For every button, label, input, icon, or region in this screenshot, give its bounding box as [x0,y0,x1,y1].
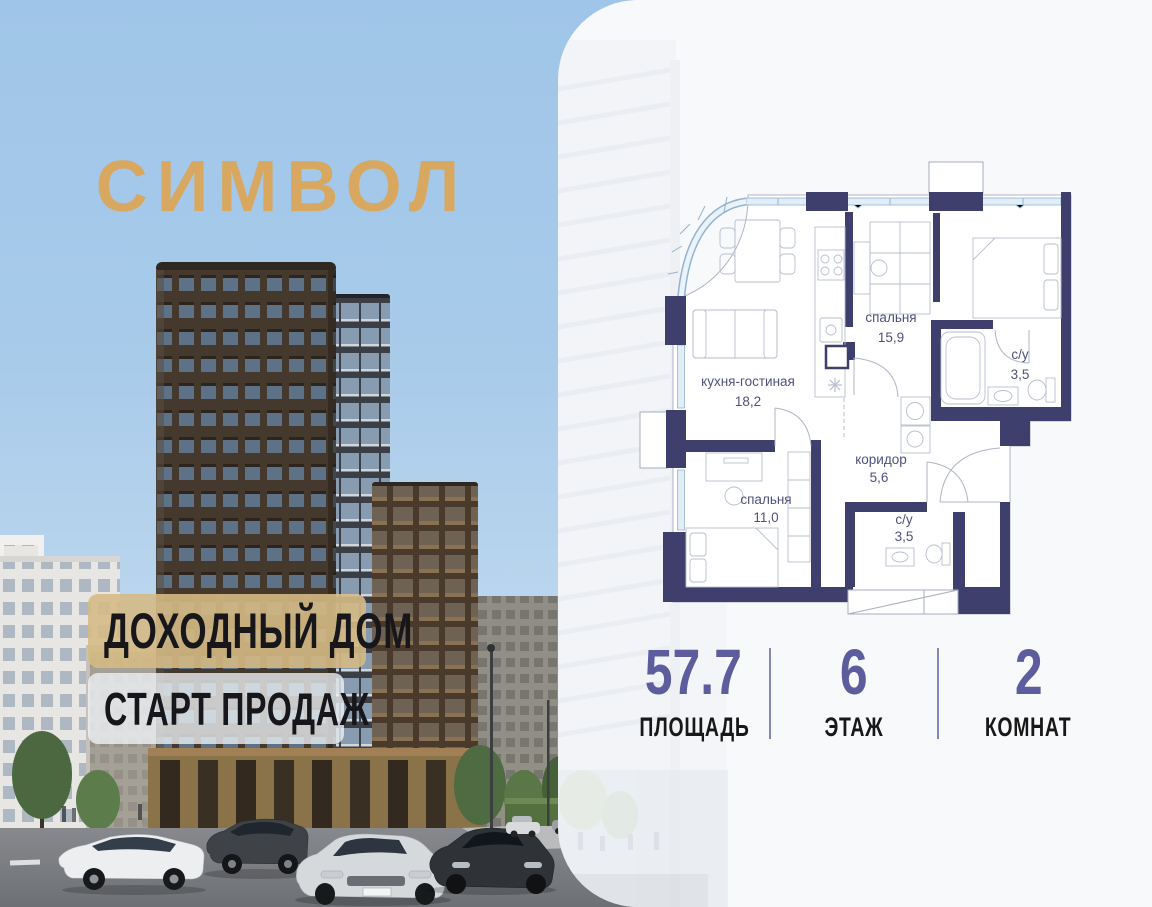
stat-rooms: 2 КОМНАТ [939,640,1118,743]
room-bath2-area: 3,5 [895,529,914,544]
listing-card[interactable]: СИМВОЛ ДОХОДНЫЙ ДОМ СТАРТ ПРОДАЖ [0,0,1152,907]
room-kitchen-name: кухня-гостиная [701,374,795,389]
room-bedroom2-area: 11,0 [753,510,778,525]
hallway-storage [848,590,958,614]
room-bedroom1-name: спальня [865,310,916,325]
stat-floor: 6 ЭТАЖ [771,640,937,743]
stat-floor-value: 6 [771,642,937,703]
room-bath1-area: 3,5 [1011,367,1030,382]
stat-area-label: ПЛОЩАДЬ [618,712,769,743]
room-corridor-name: коридор [855,452,907,467]
room-corridor-area: 5,6 [870,470,889,485]
banner-income-house-label: ДОХОДНЫЙ ДОМ [104,602,413,660]
stat-rooms-value: 2 [939,642,1118,703]
banner-income-house: ДОХОДНЫЙ ДОМ [88,594,366,668]
details-panel: кухня-гостиная 18,2 спальня 15,9 с/у 3,5… [558,0,1152,907]
stat-floor-label: ЭТАЖ [771,712,937,743]
street-podium [148,748,484,836]
room-kitchen-area: 18,2 [735,394,761,409]
stats-row: 57.7 ПЛОЩАДЬ 6 ЭТАЖ 2 КОМНАТ [618,640,1118,743]
banner-sales-start-label: СТАРТ ПРОДАЖ [104,682,370,736]
banner-sales-start: СТАРТ ПРОДАЖ [88,673,344,744]
room-bath1-name: с/у [1011,347,1029,362]
stat-area: 57.7 ПЛОЩАДЬ [618,640,769,743]
ac-unit-icon [828,378,842,392]
room-bedroom1-area: 15,9 [878,330,904,345]
ghost-street-scene [558,770,728,907]
apartment-outline [673,195,1071,614]
vent-shaft [826,346,848,368]
room-bedroom2-name: спальня [740,492,791,507]
stat-area-value: 57.7 [618,642,769,703]
stat-rooms-label: КОМНАТ [939,712,1118,743]
floor-plan: кухня-гостиная 18,2 спальня 15,9 с/у 3,5… [628,150,1090,628]
room-bath2-name: с/у [895,512,913,527]
brand-logo: СИМВОЛ [82,146,482,228]
